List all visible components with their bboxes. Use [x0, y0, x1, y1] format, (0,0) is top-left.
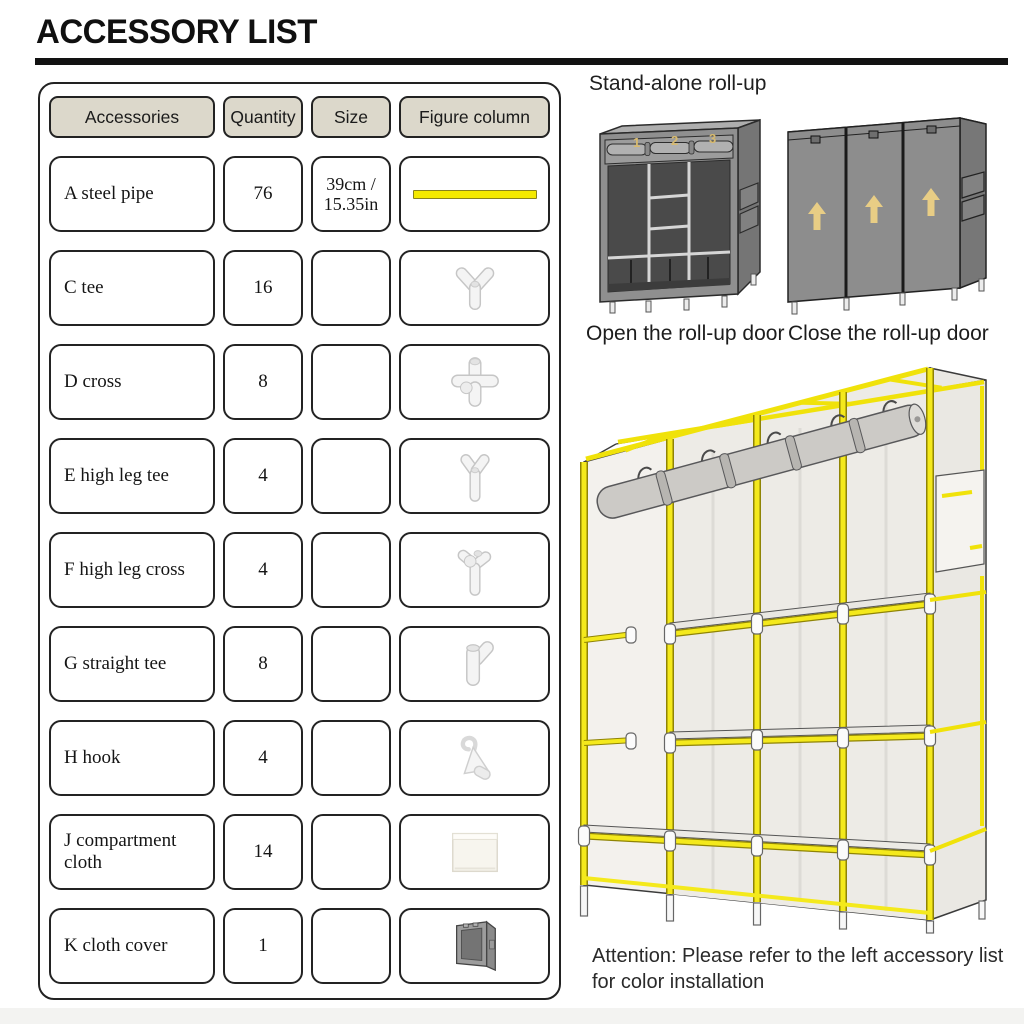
row-name: G straight tee [49, 626, 215, 702]
row-figure [399, 250, 550, 326]
row-size: 39cm / 15.35in [311, 156, 391, 232]
cloth-cover-icon [446, 916, 504, 976]
row-size [311, 344, 391, 420]
row-name: H hook [49, 720, 215, 796]
cross-connector-icon [446, 352, 504, 412]
row-name: D cross [49, 344, 215, 420]
row-quantity: 1 [223, 908, 303, 984]
row-size [311, 626, 391, 702]
row-quantity: 76 [223, 156, 303, 232]
compartment-cloth-icon [446, 822, 504, 882]
row-quantity: 14 [223, 814, 303, 890]
row-figure [399, 908, 550, 984]
title-rule [35, 58, 1008, 65]
high-leg-cross-connector-icon [446, 540, 504, 600]
bottom-strip [0, 1008, 1024, 1024]
close-door-caption: Close the roll-up door [788, 322, 989, 346]
row-quantity: 8 [223, 344, 303, 420]
row-size [311, 250, 391, 326]
header-size: Size [311, 96, 391, 138]
row-figure [399, 532, 550, 608]
accessory-table: Accessories Quantity Size Figure column … [38, 82, 561, 1000]
row-quantity: 4 [223, 438, 303, 514]
row-size [311, 720, 391, 796]
row-quantity: 16 [223, 250, 303, 326]
row-size [311, 908, 391, 984]
wardrobe-frame-illustration [574, 356, 1020, 940]
row-quantity: 8 [223, 626, 303, 702]
open-wardrobe-image: 1 2 3 [588, 98, 780, 320]
row-figure [399, 720, 550, 796]
row-quantity: 4 [223, 720, 303, 796]
door-number-2: 2 [671, 133, 678, 148]
row-size [311, 532, 391, 608]
page-title: ACCESSORY LIST [36, 13, 317, 52]
row-name: C tee [49, 250, 215, 326]
row-figure [399, 344, 550, 420]
door-number-3: 3 [709, 131, 716, 146]
door-number-1: 1 [633, 135, 640, 150]
header-quantity: Quantity [223, 96, 303, 138]
high-leg-tee-connector-icon [446, 446, 504, 506]
row-figure [399, 814, 550, 890]
row-name: F high leg cross [49, 532, 215, 608]
row-figure [399, 626, 550, 702]
row-size [311, 814, 391, 890]
tee-connector-icon [446, 258, 504, 318]
row-name: E high leg tee [49, 438, 215, 514]
row-figure [399, 156, 550, 232]
row-name: J compartment cloth [49, 814, 215, 890]
side-pocket [936, 470, 984, 572]
attention-note: Attention: Please refer to the left acce… [592, 944, 1022, 995]
header-accessories: Accessories [49, 96, 215, 138]
open-door-caption: Open the roll-up door [586, 322, 784, 346]
standalone-rollup-label: Stand-alone roll-up [589, 72, 766, 96]
header-figure-column: Figure column [399, 96, 550, 138]
row-name: K cloth cover [49, 908, 215, 984]
row-size [311, 438, 391, 514]
row-quantity: 4 [223, 532, 303, 608]
row-figure [399, 438, 550, 514]
row-name: A steel pipe [49, 156, 215, 232]
hook-icon [446, 728, 504, 788]
straight-tee-connector-icon [446, 634, 504, 694]
steel-pipe-icon [413, 190, 537, 199]
closed-wardrobe-image [780, 92, 1014, 322]
